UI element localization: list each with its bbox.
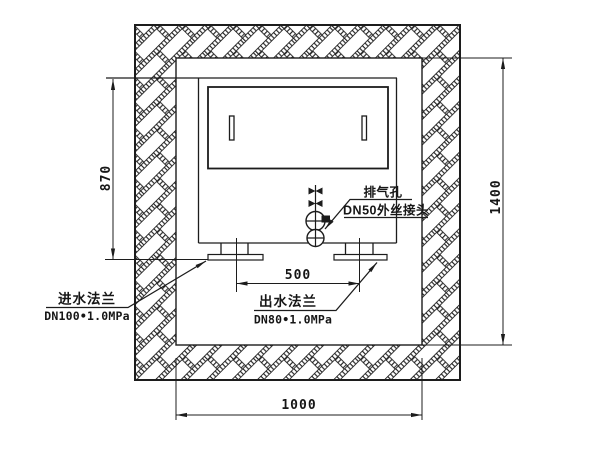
dim-870-value: 870 [99,165,114,191]
label-outlet-flange: 出水法兰 DN80•1.0MPa [254,263,377,327]
outlet-leader-arrow [368,263,377,273]
tank-slot-left [230,116,235,140]
tank-outline [208,87,388,169]
dim-1000-value: 1000 [281,398,316,413]
inlet-name: 进水法兰 [58,291,116,307]
exhaust-spec: DN50外丝接头 [343,203,429,218]
drawing-page: 870 1400 500 1000 [0,0,600,449]
inlet-spec: DN100•1.0MPa [44,309,129,323]
outlet-name: 出水法兰 [259,293,317,309]
dim-500-value: 500 [285,268,311,283]
valve-handle [322,216,331,223]
exhaust-fitting-icon [306,185,331,247]
dim-1400-value: 1400 [489,179,504,214]
outlet-flange [334,255,387,261]
label-inlet-flange: 进水法兰 DN100•1.0MPa [44,261,206,323]
label-exhaust: 排气孔 DN50外丝接头 [325,185,429,230]
tank-slot-right [362,116,367,140]
exhaust-name: 排气孔 [363,185,402,200]
technical-drawing: 870 1400 500 1000 [0,0,600,449]
inlet-flange [208,255,263,261]
inlet-leader-arrow [196,261,206,268]
dimension-500: 500 [237,268,360,286]
outlet-spec: DN80•1.0MPa [254,313,332,327]
